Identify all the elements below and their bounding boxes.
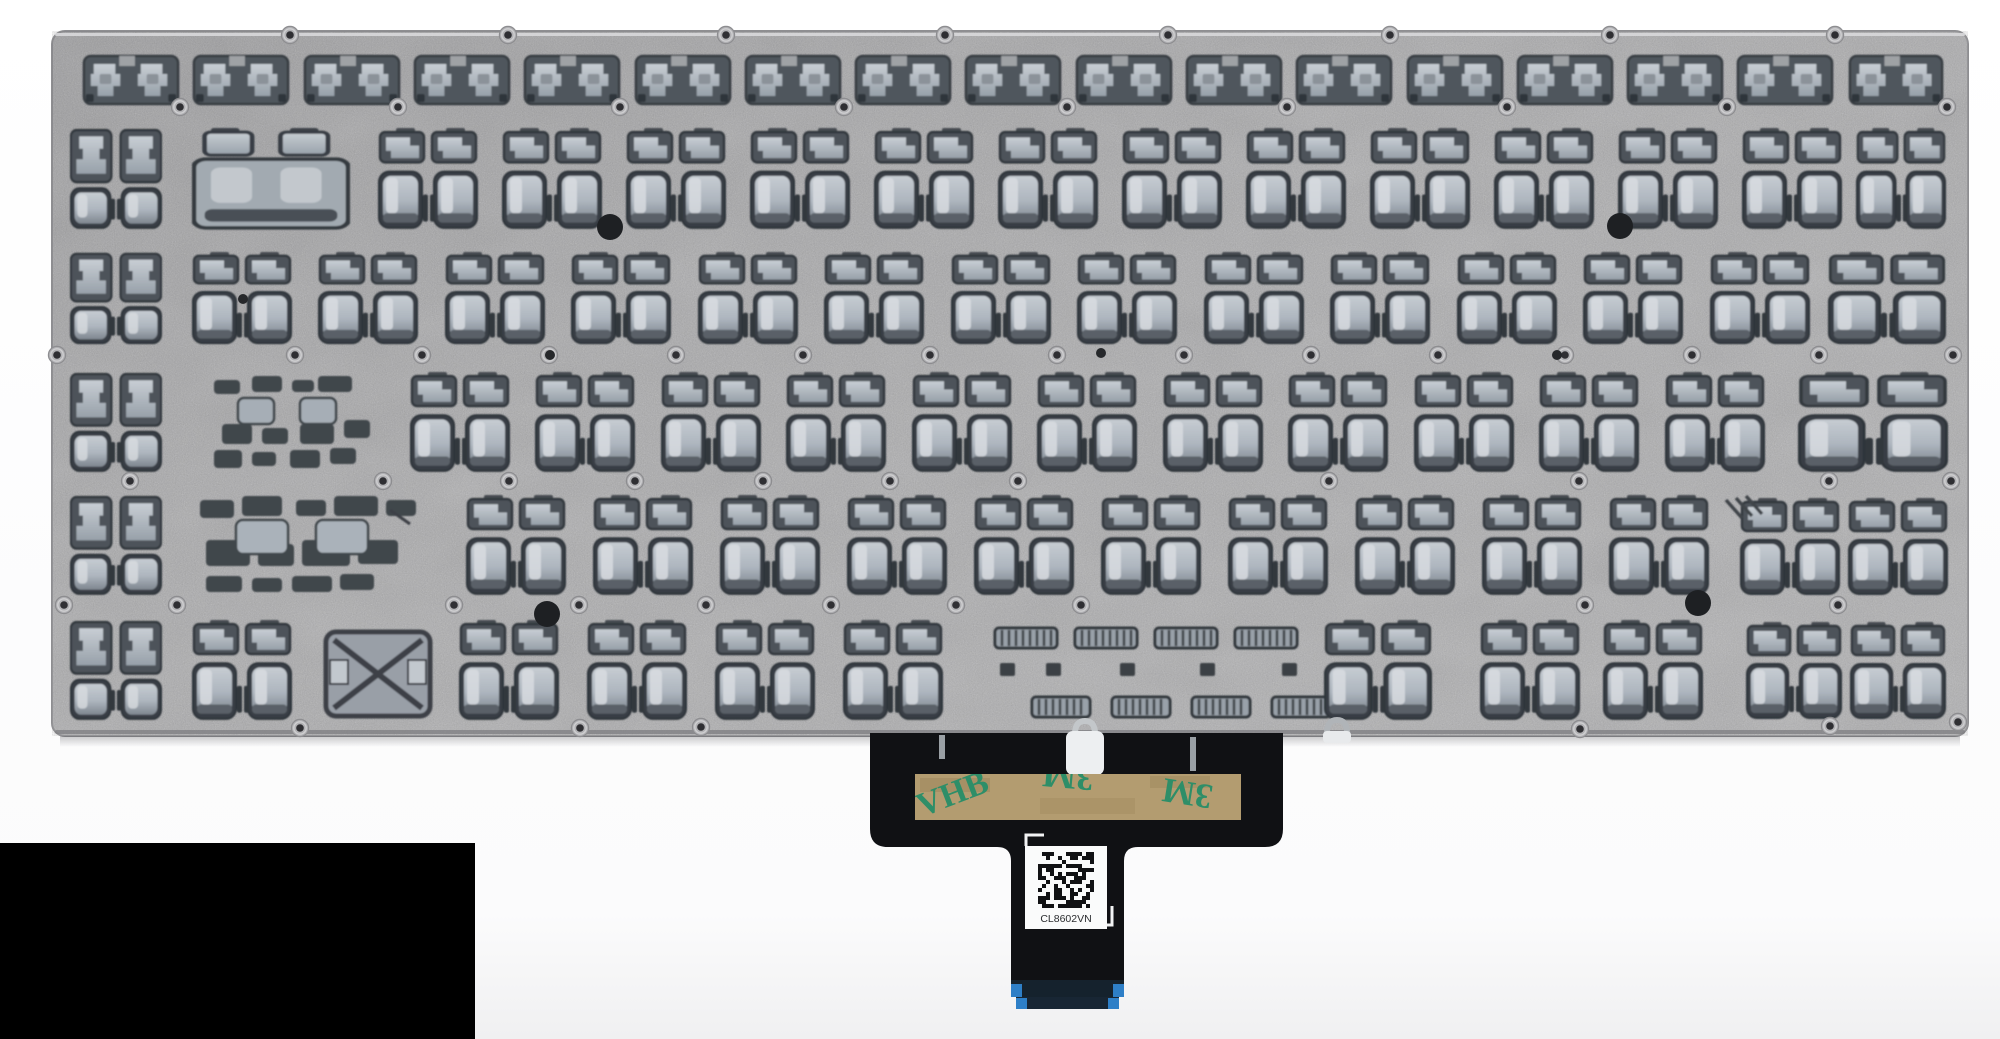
- svg-text:CL8602VN: CL8602VN: [1040, 913, 1091, 925]
- svg-text:3M: 3M: [1159, 770, 1215, 816]
